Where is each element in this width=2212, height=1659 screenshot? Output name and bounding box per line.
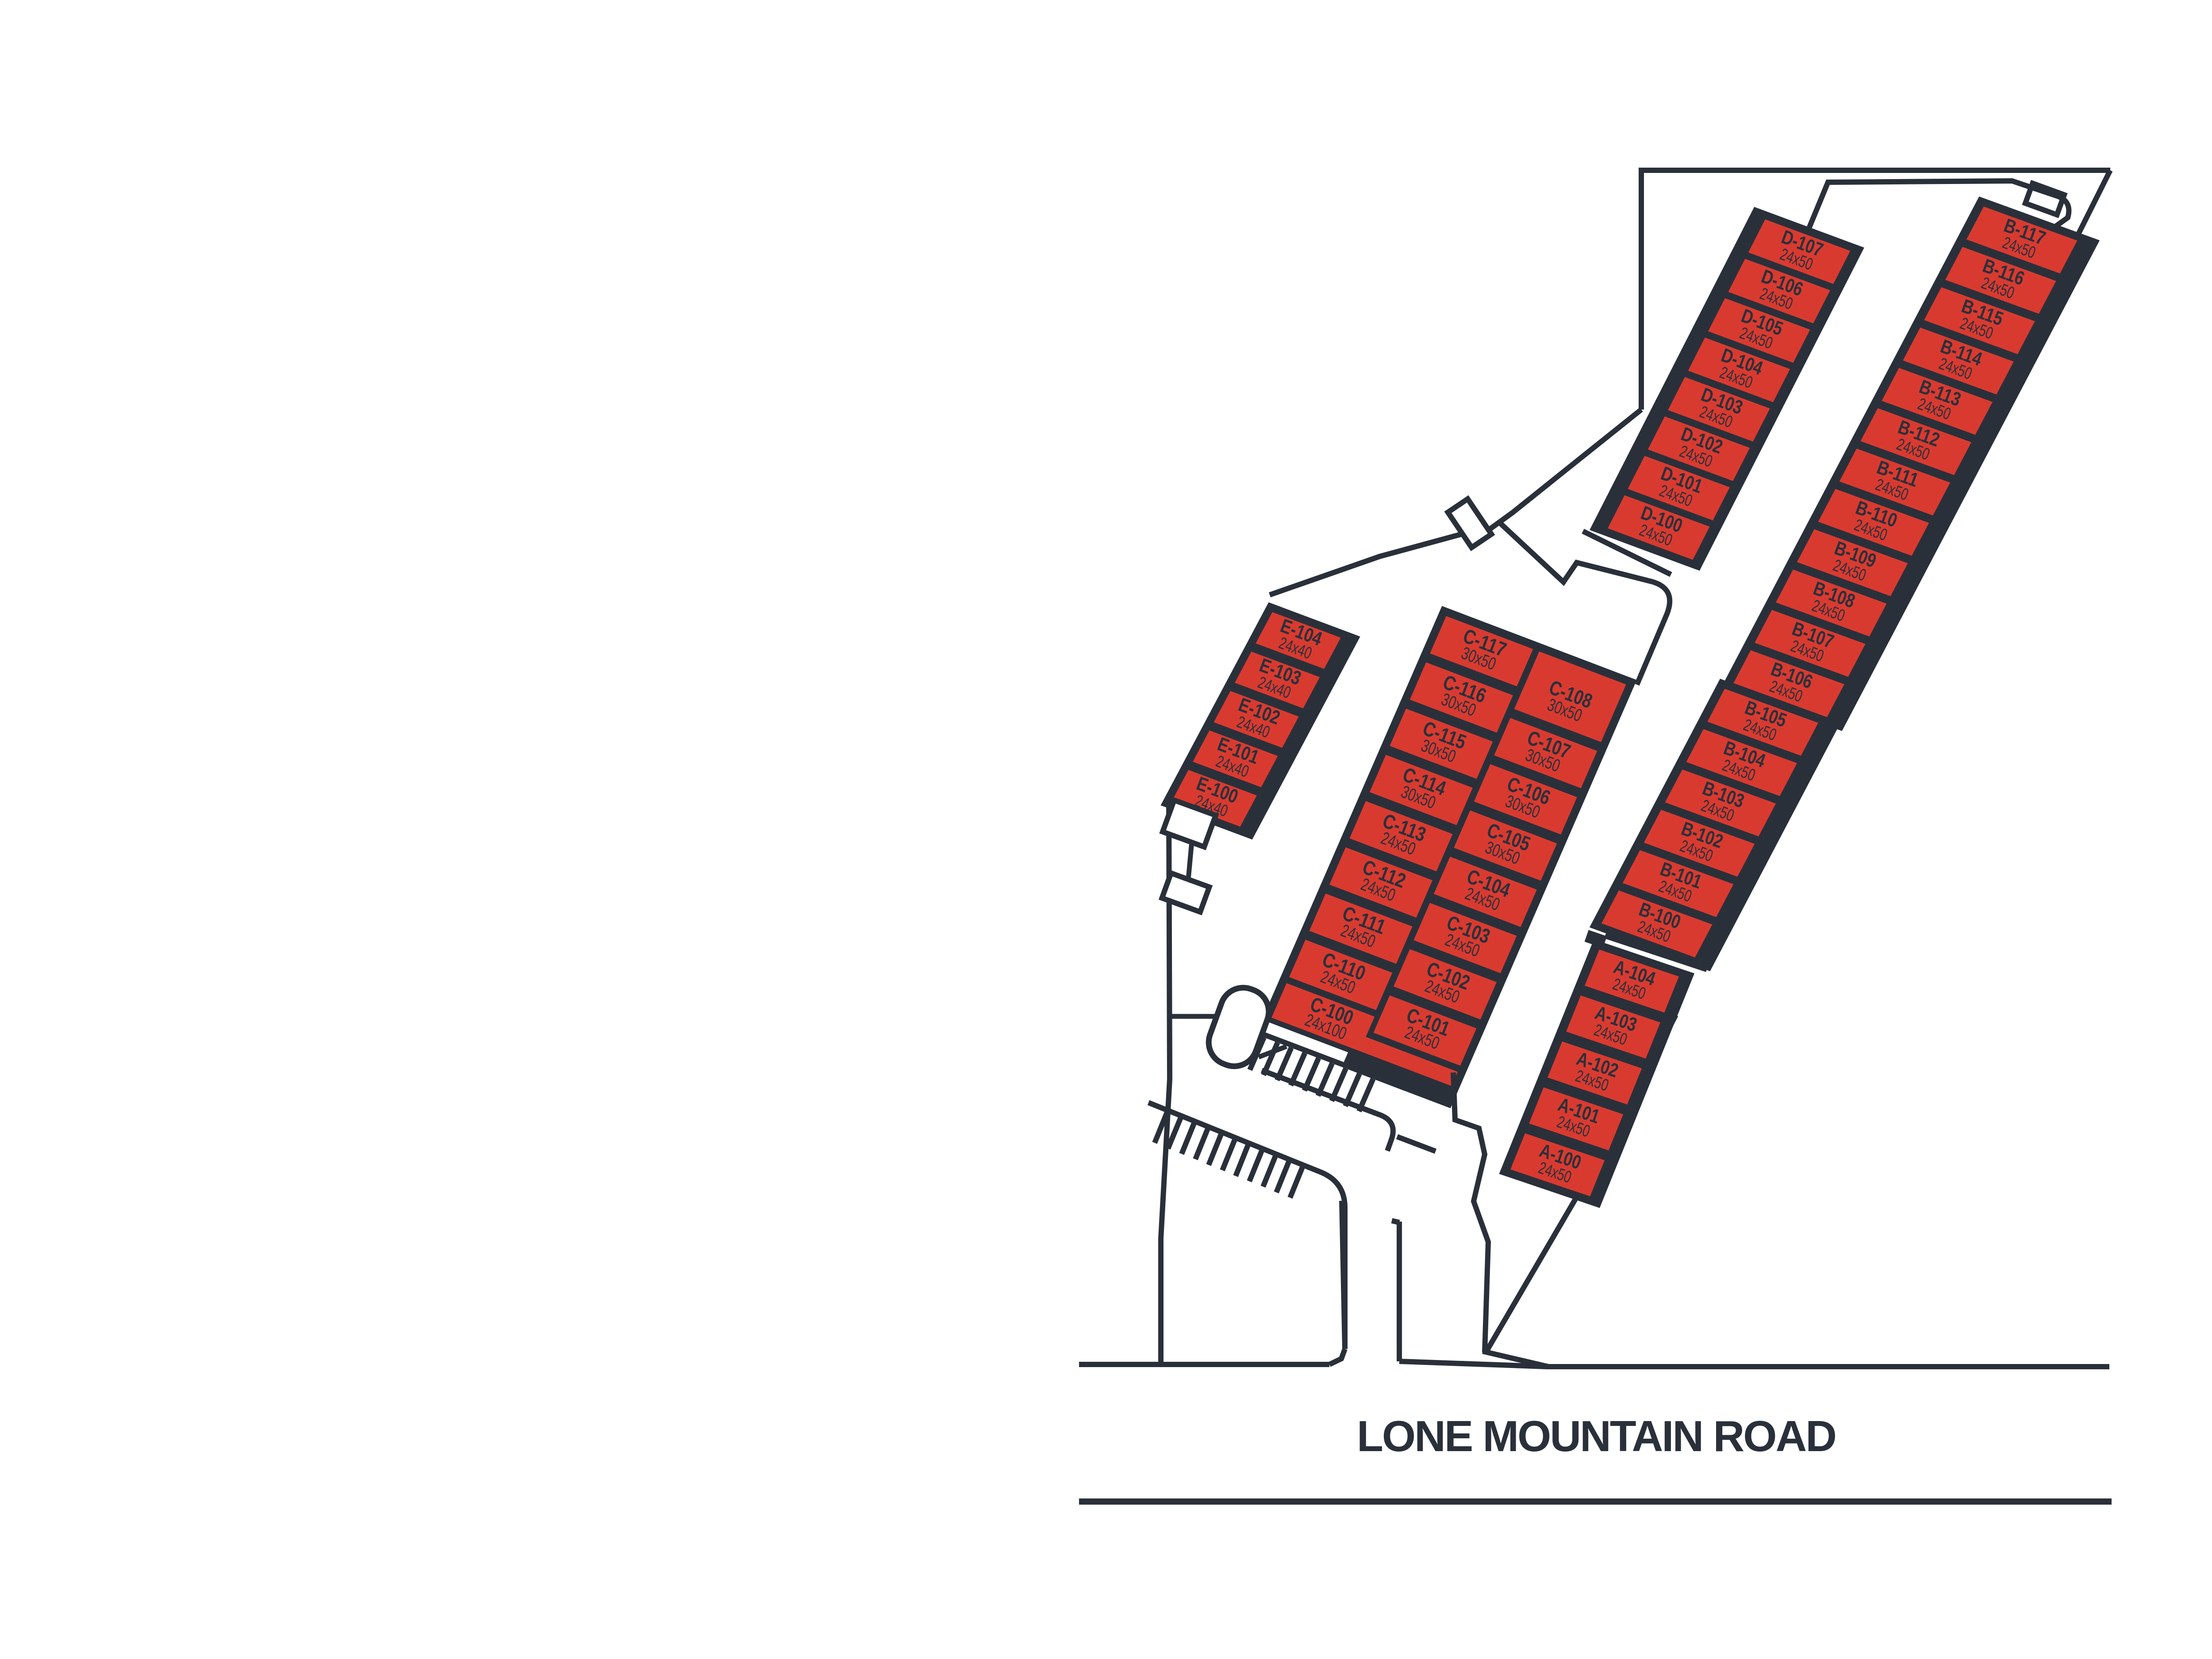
svg-text:LONE MOUNTAIN ROAD: LONE MOUNTAIN ROAD [1357,1412,1836,1460]
